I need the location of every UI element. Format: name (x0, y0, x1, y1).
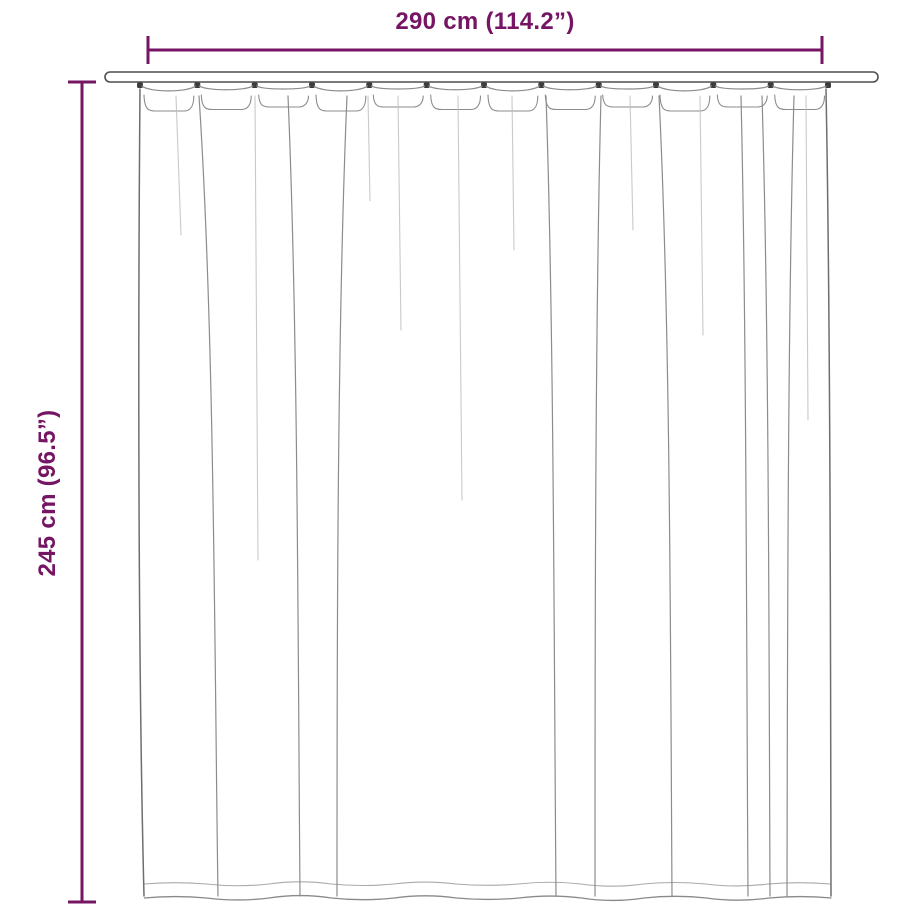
fold-line (787, 96, 794, 896)
pleat-cuff-crease (201, 95, 251, 110)
pleat-top-edge (601, 86, 654, 89)
curtain-hooks (137, 83, 831, 89)
fold-line (546, 96, 556, 896)
pleat-top-edge (257, 86, 310, 89)
curtain-hook-icon (366, 83, 372, 89)
curtain-dimension-diagram: 290 cm (114.2”) 245 cm (96.5”) (0, 0, 920, 920)
fold-line (337, 96, 347, 896)
pleat-top-edge (199, 86, 252, 90)
fold-line (762, 96, 770, 896)
curtain-hem (144, 882, 832, 901)
pleat-cuff-crease (431, 95, 481, 110)
fold-line (595, 96, 601, 896)
pleat-cuff-crease (316, 95, 366, 111)
fade-crease-line (512, 96, 514, 250)
pleat-top-edge (314, 86, 367, 91)
curtain-hook-icon (825, 83, 831, 89)
hem-crease-line (144, 882, 830, 886)
pleat-top-edge (543, 86, 596, 90)
curtain-fade-creases (176, 96, 808, 560)
pleat-top-edge (142, 86, 195, 91)
pleat-cuff-crease (488, 95, 538, 111)
curtain-hook-icon (596, 83, 602, 89)
pleat-top-edge (429, 86, 482, 90)
curtain-rod (105, 72, 878, 82)
fade-crease-line (630, 96, 633, 230)
curtain-side-edge (139, 89, 144, 896)
pleat-top-edge (486, 86, 539, 91)
pleat-cuff-crease (717, 95, 767, 107)
curtain-hook-icon (538, 83, 544, 89)
pleat-top-edge (658, 86, 711, 91)
curtain-hook-icon (710, 83, 716, 89)
curtain-hook-icon (653, 83, 659, 89)
fade-crease-line (398, 96, 401, 330)
curtain-pleat-header (142, 86, 826, 111)
pleat-cuff-crease (603, 95, 653, 107)
pleat-cuff-crease (660, 95, 710, 111)
curtain-hook-icon (481, 83, 487, 89)
curtain-fold-lines (139, 89, 831, 896)
pleat-top-edge (715, 86, 768, 89)
fade-crease-line (458, 96, 462, 500)
curtain-hook-icon (194, 83, 200, 89)
fold-line (199, 96, 218, 896)
fold-line (288, 96, 300, 896)
fade-crease-line (368, 96, 370, 201)
width-dimension-line (148, 36, 822, 64)
curtain-hook-icon (768, 83, 774, 89)
pleat-cuff-crease (775, 95, 825, 110)
curtain-hook-icon (137, 83, 143, 89)
pleat-cuff-crease (144, 95, 194, 111)
curtain-hook-icon (309, 83, 315, 89)
hem-bottom-edge (144, 896, 832, 901)
fade-crease-line (806, 96, 808, 420)
pleat-top-edge (773, 86, 826, 90)
curtain-side-edge (826, 89, 831, 896)
fade-crease-line (255, 96, 258, 560)
fold-line (659, 96, 672, 896)
curtain-diagram-svg (0, 0, 920, 920)
fade-crease-line (700, 96, 703, 335)
pleat-cuff-crease (259, 95, 309, 107)
curtain-hook-icon (252, 83, 258, 89)
pleat-top-edge (371, 86, 424, 89)
curtain-hook-icon (424, 83, 430, 89)
fold-line (741, 96, 748, 896)
height-dimension-line (68, 82, 96, 902)
pleat-cuff-crease (545, 95, 595, 110)
fade-crease-line (176, 96, 181, 235)
